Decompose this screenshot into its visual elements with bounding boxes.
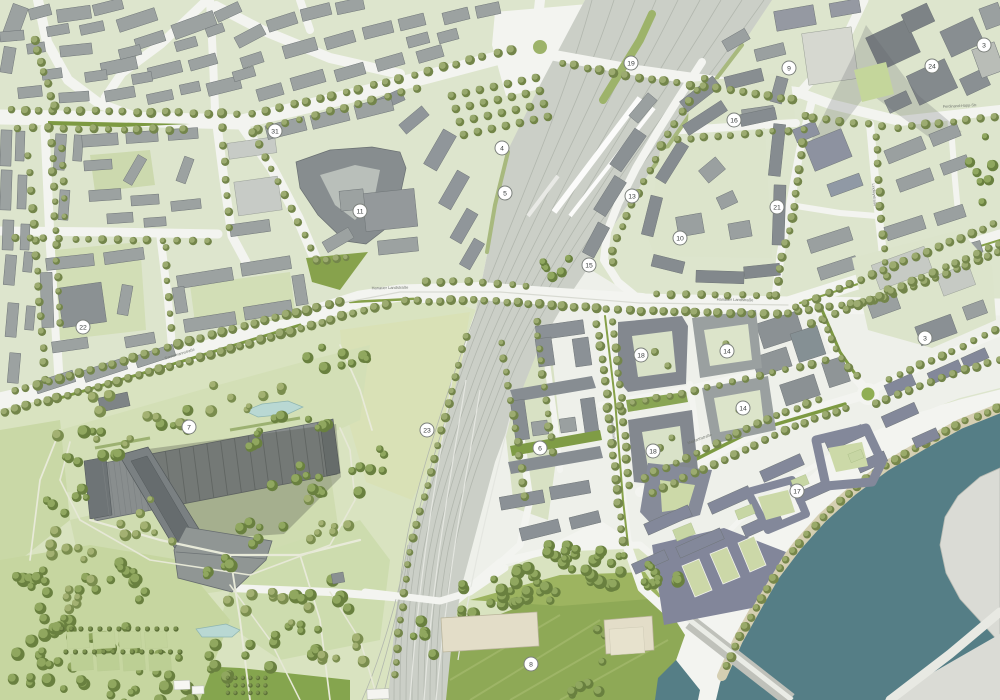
- svg-text:17: 17: [793, 488, 801, 495]
- svg-text:9: 9: [787, 65, 791, 72]
- svg-text:23: 23: [423, 427, 431, 434]
- svg-text:8: 8: [529, 661, 533, 668]
- svg-text:Hanauer Landstraße: Hanauer Landstraße: [372, 285, 410, 291]
- svg-text:Hanauer Landstraße: Hanauer Landstraße: [717, 297, 755, 303]
- svg-text:14: 14: [739, 405, 747, 412]
- svg-text:7: 7: [187, 424, 191, 431]
- svg-text:21: 21: [773, 204, 781, 211]
- svg-text:5: 5: [503, 190, 507, 197]
- svg-text:6: 6: [538, 445, 542, 452]
- svg-text:11: 11: [356, 208, 363, 215]
- svg-text:15: 15: [585, 262, 593, 269]
- svg-text:19: 19: [627, 60, 635, 67]
- svg-text:18: 18: [649, 448, 657, 455]
- svg-text:14: 14: [723, 348, 731, 355]
- svg-text:4: 4: [500, 145, 504, 152]
- svg-text:10: 10: [676, 235, 684, 242]
- svg-text:31: 31: [271, 128, 279, 135]
- svg-text:3: 3: [982, 42, 986, 49]
- svg-text:18: 18: [637, 352, 645, 359]
- svg-text:3: 3: [923, 335, 927, 342]
- svg-text:16: 16: [730, 117, 738, 124]
- svg-text:13: 13: [628, 193, 636, 200]
- svg-text:22: 22: [79, 324, 87, 331]
- svg-text:24: 24: [928, 63, 936, 70]
